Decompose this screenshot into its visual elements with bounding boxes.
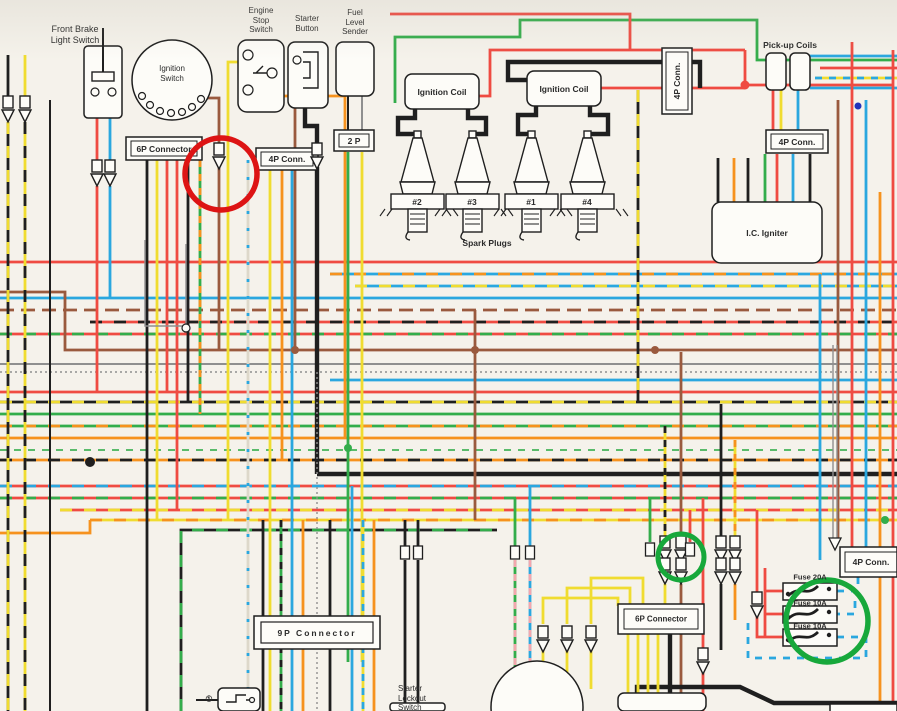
ignition-switch-label: Ignition Switch <box>137 64 207 83</box>
spark-plugs-caption: Spark Plugs <box>462 238 511 248</box>
horizontal-wire-bundle-upper <box>0 262 897 380</box>
starter-button-symbol <box>288 42 328 108</box>
spark-plug-group <box>380 131 628 240</box>
four-p-conn-vertical-label: 4P Conn. <box>672 63 682 100</box>
fuse-10a-label-1: Fuse 10A <box>793 599 826 608</box>
fuel-level-sender-symbol <box>336 42 374 96</box>
diode-symbols <box>2 96 763 674</box>
fuse-10a-label-2: Fuse 10A <box>793 622 826 631</box>
connector-pins <box>401 543 695 559</box>
annotation-dot-blue <box>855 103 862 110</box>
spark-plug-2-label: #2 <box>412 197 421 207</box>
four-p-conn-right-label: 4P Conn. <box>779 137 816 147</box>
spark-plug-1-label: #1 <box>526 197 535 207</box>
ignition-coil-left-label: Ignition Coil <box>417 87 466 97</box>
fuel-level-sender-label: Fuel Level Sender <box>325 8 385 37</box>
wiring-diagram-canvas <box>0 0 897 711</box>
ignition-coil-right-label: Ignition Coil <box>539 84 588 94</box>
ic-igniter-label: I.C. Igniter <box>746 228 788 238</box>
circled-1-marker: ① <box>205 695 212 704</box>
horizontal-wire-bundle-lower <box>0 392 897 711</box>
wiring-diagram-page: Front Brake Light Switch Ignition Switch… <box>0 0 897 711</box>
bottom-right-wires <box>637 352 897 711</box>
four-p-conn-top-label: 4P Conn. <box>269 154 306 164</box>
four-p-conn-bottom-right-label: 4P Conn. <box>853 557 890 567</box>
diode-in-red-circle <box>213 143 225 169</box>
nine-p-connector-label: 9P Connector <box>277 628 356 638</box>
starter-lockout-switch-label: Starter Lockout Switch <box>398 684 458 711</box>
ignition-switch-column-wires <box>147 98 248 711</box>
spark-plug-4-label: #4 <box>582 197 591 207</box>
engine-stop-switch-symbol <box>238 40 284 112</box>
fuse-20a-label: Fuse 20A <box>793 573 826 582</box>
six-p-connector-top-label: 6P Connector <box>136 144 191 154</box>
front-brake-light-switch-label: Front Brake Light Switch <box>29 24 121 46</box>
two-p-conn-label: 2 P <box>348 136 361 146</box>
pickup-coils-label: Pick-up Coils <box>763 40 817 50</box>
left-vertical-wires <box>8 55 110 711</box>
six-p-connector-bottom-label: 6P Connector <box>635 615 687 624</box>
spark-plug-3-label: #3 <box>467 197 476 207</box>
